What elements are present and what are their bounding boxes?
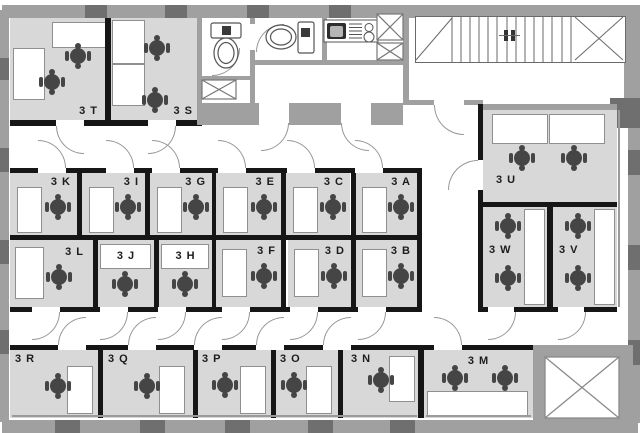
stairs-icon: [416, 17, 626, 63]
room-label: 3 U: [496, 175, 516, 186]
office-chair-icon: [147, 92, 163, 108]
desk: [159, 366, 185, 414]
window-mullion: [308, 420, 333, 433]
window-mullion: [85, 5, 107, 18]
room-3q: 3 Q: [103, 350, 193, 418]
office-chair-icon: [120, 199, 136, 215]
door-swing-icon: [355, 140, 383, 168]
window-mullion: [628, 150, 640, 175]
door-swing-icon: [323, 317, 351, 345]
door-opening: [152, 168, 180, 173]
desk: [294, 249, 319, 297]
office-chair-icon: [570, 218, 586, 234]
window-mullion: [329, 5, 351, 18]
office-chair-icon: [50, 199, 66, 215]
desk: [15, 247, 44, 299]
wall: [338, 350, 343, 418]
door-swing-icon: [256, 317, 284, 345]
wall: [145, 168, 150, 240]
desk: [223, 187, 248, 233]
kitchen-sink-icon: [324, 20, 378, 42]
door-opening: [355, 168, 383, 173]
window-mullion: [0, 148, 9, 172]
door-swing-icon: [434, 317, 462, 345]
office-chair-icon: [566, 150, 582, 166]
office-chair-icon: [256, 199, 272, 215]
door-swing-icon: [218, 140, 246, 168]
room-3u: 3 U: [483, 110, 617, 202]
door-swing-icon: [434, 105, 464, 135]
door-opening: [287, 168, 315, 173]
room-3o: 3 O: [276, 350, 338, 418]
desk: [362, 249, 387, 297]
room-3p: 3 P: [198, 350, 271, 418]
wall: [98, 350, 103, 418]
window-mullion: [628, 245, 640, 270]
office-chair-icon: [393, 268, 409, 284]
window-mullion: [0, 330, 9, 354]
room-3h: 3 H: [159, 240, 212, 307]
door-opening: [259, 103, 289, 125]
door-opening: [128, 345, 156, 350]
office-chair-icon: [373, 372, 389, 388]
door-swing-icon: [222, 312, 250, 340]
room-label: 3 A: [391, 177, 411, 188]
door-swing-icon: [56, 126, 84, 154]
window: [12, 415, 417, 417]
wall: [255, 60, 407, 65]
room-label: 3 C: [324, 177, 344, 188]
wall: [281, 168, 286, 312]
desk: [112, 20, 145, 64]
door-opening: [434, 345, 462, 350]
room-3a: 3 A: [355, 173, 417, 235]
door-swing-icon: [100, 312, 128, 340]
room-label: 3 B: [391, 246, 411, 257]
room-3w: 3 W: [483, 207, 547, 307]
office-chair-icon: [447, 370, 463, 386]
room-3e: 3 E: [216, 173, 281, 235]
wall: [10, 235, 422, 240]
room-label: 3 W: [489, 245, 512, 256]
office-chair-icon: [51, 269, 67, 285]
room-label: 3 T: [79, 106, 98, 117]
wall: [193, 350, 198, 418]
desk: [52, 22, 106, 48]
room-3d: 3 D: [288, 240, 351, 307]
room-3l: 3 L: [10, 240, 93, 307]
door-opening: [323, 345, 351, 350]
wall: [351, 168, 356, 312]
desk: [89, 187, 114, 233]
door-swing-icon: [32, 312, 60, 340]
room-label: 3 R: [15, 354, 35, 365]
wall: [403, 10, 409, 105]
door-swing-icon: [290, 312, 318, 340]
window: [426, 415, 531, 417]
wall: [417, 168, 422, 312]
office-chair-icon: [177, 276, 193, 292]
door-swing-icon: [448, 160, 478, 190]
door-swing-icon: [558, 312, 586, 340]
room-3g: 3 G: [150, 173, 212, 235]
desk: [157, 187, 182, 233]
door-swing-icon: [488, 312, 516, 340]
room-3i: 3 I: [82, 173, 145, 235]
door-opening: [250, 24, 255, 50]
room-3v: 3 V: [553, 207, 617, 307]
office-chair-icon: [70, 48, 86, 64]
door-swing-icon: [261, 123, 289, 151]
office-chair-icon: [514, 150, 530, 166]
office-chair-icon: [500, 218, 516, 234]
room-3m: 3 M: [424, 350, 533, 418]
room-label: 3 S: [173, 106, 193, 117]
desk: [594, 209, 615, 305]
door-opening: [218, 168, 246, 173]
desk: [293, 187, 318, 233]
desk: [112, 64, 145, 106]
office-chair-icon: [217, 377, 233, 393]
room-3s: 3 S: [111, 18, 199, 122]
wall: [197, 103, 403, 125]
room-label: 3 K: [51, 177, 71, 188]
room-label: 3 I: [124, 177, 139, 188]
wall: [478, 104, 483, 160]
door-swing-icon: [287, 140, 315, 168]
office-chair-icon: [117, 276, 133, 292]
room-label: 3 N: [351, 354, 371, 365]
burner-icon: [365, 24, 373, 32]
office-chair-icon: [50, 378, 66, 394]
room-label: 3 Q: [108, 354, 129, 365]
room-label: 3 J: [98, 251, 154, 262]
window-mullion: [55, 420, 80, 433]
office-chair-icon: [497, 370, 513, 386]
window-mullion: [140, 420, 165, 433]
room-label: 3 G: [185, 177, 206, 188]
floor-plan: 3 T 3 S 3 K 3 I 3 G 3 E: [0, 0, 640, 433]
door-swing-icon: [128, 317, 156, 345]
window: [618, 110, 620, 307]
office-chair-icon: [326, 268, 342, 284]
wall: [547, 207, 553, 307]
door-swing-icon: [106, 140, 134, 168]
door-swing-icon: [256, 24, 284, 52]
desk: [306, 366, 332, 414]
room-label: 3 E: [255, 177, 275, 188]
wall: [322, 18, 327, 62]
window-mullion: [247, 5, 269, 18]
door-opening: [341, 103, 371, 125]
outer-wall-top-right: [412, 5, 628, 18]
room-label: 3 H: [159, 251, 212, 262]
door-opening: [58, 345, 86, 350]
outer-wall-right-upper: [624, 5, 640, 105]
room-3t: 3 T: [10, 18, 106, 122]
elevator-shaft-wall: [533, 345, 633, 433]
door-opening: [194, 345, 222, 350]
room-label: 3 V: [559, 245, 579, 256]
desk: [13, 48, 45, 100]
room-label: 3 F: [257, 246, 276, 257]
desk: [549, 114, 605, 144]
wall: [478, 190, 483, 312]
wall: [202, 76, 250, 80]
desk: [362, 187, 387, 233]
wall: [271, 350, 276, 418]
office-chair-icon: [393, 199, 409, 215]
room-3k: 3 K: [10, 173, 77, 235]
room-3c: 3 C: [286, 173, 350, 235]
door-swing-icon: [58, 317, 86, 345]
room-3n: 3 N: [343, 350, 418, 418]
wall: [154, 240, 159, 312]
room-label: 3 O: [280, 354, 301, 365]
office-chair-icon: [44, 74, 60, 90]
wall: [418, 350, 424, 418]
wall: [483, 104, 617, 110]
wall: [77, 168, 82, 240]
desk: [67, 366, 93, 414]
desk: [524, 209, 545, 305]
door-opening: [38, 168, 66, 173]
door-opening: [106, 168, 134, 173]
window-mullion: [390, 420, 415, 433]
window-mullion: [225, 420, 250, 433]
door-swing-icon: [152, 140, 180, 168]
window-mullion: [165, 5, 187, 18]
office-chair-icon: [570, 270, 586, 286]
room-3r: 3 R: [10, 350, 98, 418]
desk: [492, 114, 548, 144]
room-label: 3 M: [424, 356, 533, 367]
desk: [427, 391, 528, 416]
door-swing-icon: [158, 312, 186, 340]
room-label: 3 P: [202, 354, 222, 365]
door-opening: [256, 345, 284, 350]
burner-icon: [364, 32, 374, 42]
window-mullion: [0, 240, 9, 264]
wall: [212, 168, 216, 312]
desk: [240, 366, 266, 414]
office-chair-icon: [139, 378, 155, 394]
office-chair-icon: [188, 199, 204, 215]
room-3j: 3 J: [98, 240, 154, 307]
room-3f: 3 F: [216, 240, 282, 307]
office-chair-icon: [149, 40, 165, 56]
door-swing-icon: [212, 48, 240, 76]
office-chair-icon: [286, 377, 302, 393]
door-swing-icon: [358, 312, 386, 340]
desk: [222, 249, 247, 297]
room-label: 3 D: [325, 246, 345, 257]
office-chair-icon: [256, 268, 272, 284]
door-swing-icon: [194, 317, 222, 345]
room-3b: 3 B: [356, 240, 417, 307]
window-mullion: [0, 58, 9, 80]
office-chair-icon: [325, 199, 341, 215]
desk: [17, 187, 42, 233]
wall: [93, 240, 98, 312]
wall: [105, 18, 111, 122]
office-chair-icon: [500, 270, 516, 286]
room-label: 3 L: [65, 247, 84, 258]
